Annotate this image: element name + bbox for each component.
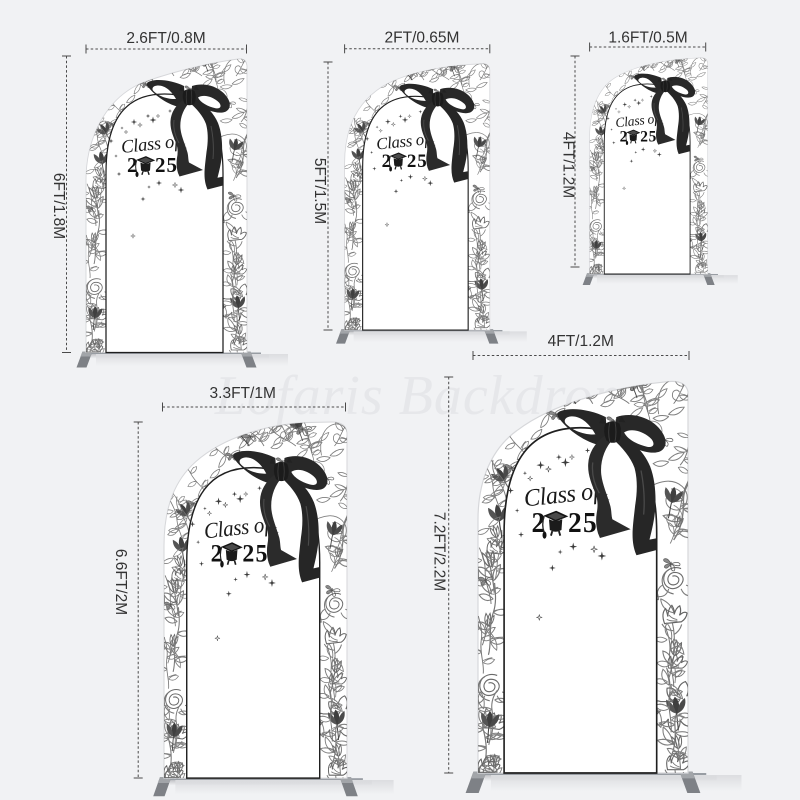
svg-text:5FT/1.5M: 5FT/1.5M bbox=[311, 158, 328, 224]
svg-text:2.6FT/0.8M: 2.6FT/0.8M bbox=[126, 30, 205, 47]
svg-text:2FT/0.65M: 2FT/0.65M bbox=[385, 30, 460, 47]
svg-text:1.6FT/0.5M: 1.6FT/0.5M bbox=[608, 30, 687, 47]
svg-text:7.2FT/2.2M: 7.2FT/2.2M bbox=[431, 512, 448, 591]
svg-text:3.3FT/1M: 3.3FT/1M bbox=[210, 385, 276, 402]
svg-text:6FT/1.8M: 6FT/1.8M bbox=[50, 173, 67, 239]
svg-text:4FT/1.2M: 4FT/1.2M bbox=[560, 132, 577, 198]
svg-text:4FT/1.2M: 4FT/1.2M bbox=[548, 333, 614, 350]
svg-text:6.6FT/2M: 6.6FT/2M bbox=[112, 549, 129, 615]
